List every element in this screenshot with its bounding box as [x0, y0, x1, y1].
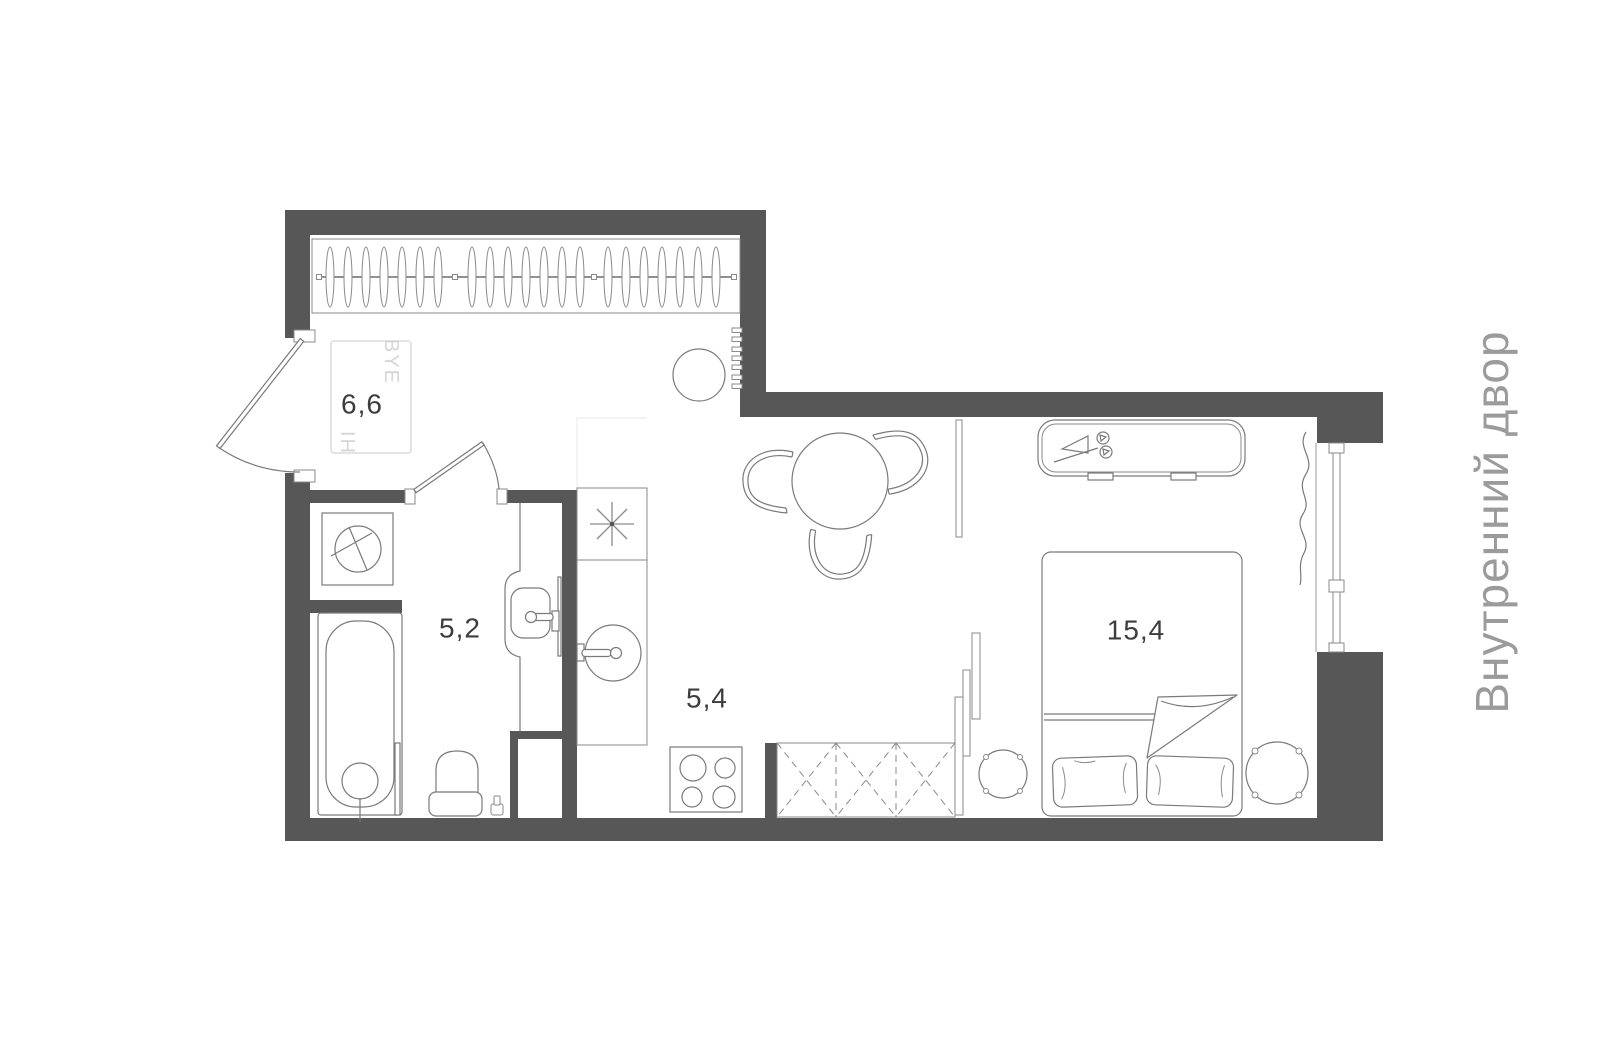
wall-hallway-right — [740, 210, 766, 417]
window-frame-bottom — [1329, 643, 1344, 652]
window-bay — [1300, 432, 1344, 652]
dining-table — [792, 433, 888, 529]
duct-shaft-inner — [518, 739, 562, 818]
floor-plan-page: BYE HI 6,6 — [0, 0, 1600, 1060]
wall-left-lower — [285, 473, 310, 841]
door-jamb-plate — [497, 489, 507, 504]
kitchen: 5,4 — [577, 418, 742, 812]
dining-chair — [743, 450, 793, 513]
bathroom-door-leaf — [414, 442, 484, 493]
bathroom-sink — [505, 503, 561, 731]
courtyard-label: Внутренний двор — [1466, 330, 1518, 713]
doormat-text-bye: BYE — [380, 339, 402, 385]
wall-living-top — [766, 392, 1317, 417]
dining-chair — [809, 528, 872, 579]
room-divider-panels — [955, 420, 980, 815]
hallway-area-label: 6,6 — [341, 389, 383, 420]
entrance-door-leaf — [217, 339, 304, 449]
closet-hangers — [326, 247, 720, 307]
window-glazing — [1333, 443, 1340, 650]
window-frame-mid — [1329, 580, 1344, 592]
entrance-door — [217, 330, 315, 482]
pillow — [1146, 756, 1234, 808]
kitchen-area-label: 5,4 — [686, 683, 728, 714]
wall-tub-stub — [310, 600, 402, 613]
wall-hooks — [732, 328, 742, 389]
wall-top-hallway — [285, 210, 766, 235]
wall-bath-top-left — [310, 490, 414, 503]
tv-console — [1038, 420, 1245, 480]
entrance-door-swing-arc — [218, 447, 300, 472]
dining-set — [743, 419, 936, 579]
hallway: BYE HI 6,6 — [312, 239, 742, 453]
curtain — [1300, 432, 1309, 585]
washing-machine — [322, 513, 393, 585]
console-foot — [1171, 473, 1196, 480]
faucet-plate — [552, 611, 559, 631]
wall-bottom — [285, 818, 1317, 841]
wardrobe — [777, 743, 955, 817]
floor-drain — [491, 804, 503, 815]
bedroom-area-label: 15,4 — [1107, 615, 1166, 646]
bathroom-door-swing-arc — [483, 443, 499, 489]
toilet — [429, 751, 503, 816]
bed: 15,4 — [1042, 552, 1242, 816]
faucet-knob — [526, 612, 537, 623]
bedside-table — [979, 750, 1027, 798]
wall-wardrobe-stub — [765, 743, 777, 818]
window-frame-top — [1329, 443, 1344, 453]
hallway-stool — [673, 349, 725, 401]
floor-drain-top — [494, 796, 500, 805]
bathtub — [318, 613, 402, 822]
bathroom-area-label: 5,2 — [439, 613, 481, 644]
bedside-table — [1246, 742, 1308, 804]
pillow — [1052, 756, 1138, 808]
door-jamb-plate — [405, 489, 415, 504]
floor-plan: BYE HI 6,6 — [0, 0, 1600, 1060]
faucet-arm — [582, 650, 611, 657]
doormat-text-hi: HI — [338, 429, 360, 453]
stove — [670, 747, 742, 812]
wall-left-upper — [285, 210, 310, 338]
door-jamb-plate — [294, 330, 315, 342]
faucet-knob — [611, 648, 622, 659]
wall-pier-se — [1317, 652, 1383, 841]
wall-pier-ne — [1317, 392, 1383, 443]
console-foot — [1088, 473, 1113, 480]
